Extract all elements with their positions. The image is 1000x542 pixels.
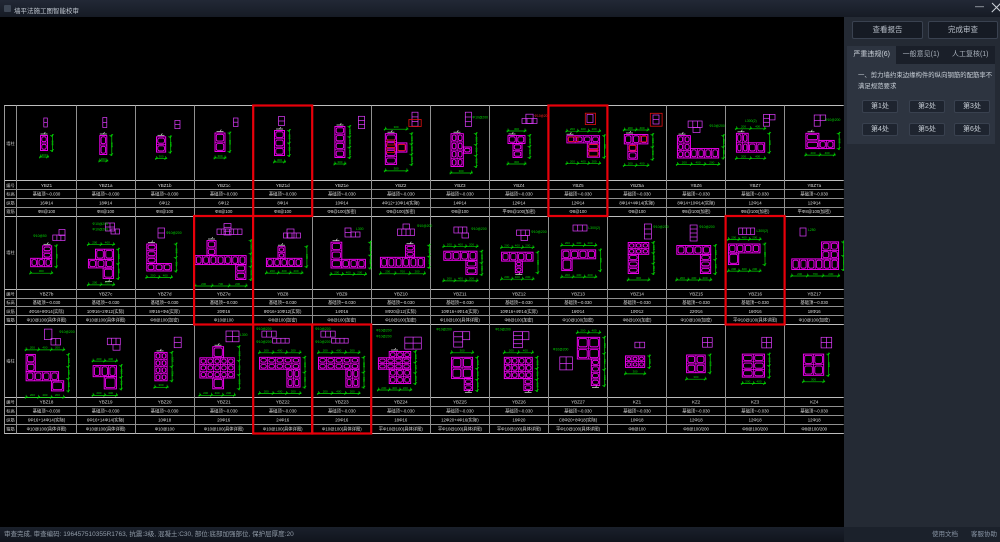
svg-text:400: 400	[475, 147, 479, 152]
svg-text:300: 300	[159, 154, 164, 158]
svg-text:Φ10@200: Φ10@200	[315, 327, 331, 331]
svg-text:16Φ16: 16Φ16	[749, 309, 763, 314]
svg-text:Φ8@100(加密): Φ8@100(加密)	[327, 317, 356, 324]
svg-text:300: 300	[536, 260, 540, 265]
svg-text:200: 200	[203, 391, 208, 395]
svg-text:基础顶~-0.030: 基础顶~-0.030	[741, 299, 769, 306]
svg-text:12Φ14: 12Φ14	[572, 201, 586, 206]
svg-text:墙柱: 墙柱	[6, 249, 15, 256]
svg-text:YBZ19: YBZ19	[99, 400, 113, 405]
svg-text:200: 200	[628, 126, 633, 130]
svg-text:200: 200	[476, 360, 480, 365]
svg-text:200: 200	[525, 275, 530, 279]
svg-text:200: 200	[67, 358, 71, 363]
svg-text:200: 200	[201, 282, 206, 286]
svg-text:300: 300	[55, 253, 59, 258]
svg-text:8Φ14: 8Φ14	[277, 201, 288, 206]
svg-text:YBZ8: YBZ8	[277, 292, 289, 297]
svg-text:YBZ23: YBZ23	[335, 400, 349, 405]
svg-text:平Φ10@100(具体详图): 平Φ10@100(具体详图)	[379, 426, 424, 433]
svg-text:基础顶~-0.030: 基础顶~-0.030	[446, 299, 474, 306]
svg-text:300: 300	[101, 157, 106, 161]
svg-text:200: 200	[428, 248, 432, 253]
svg-text:Φ10@200: Φ10@200	[59, 330, 75, 334]
svg-text:400: 400	[722, 150, 726, 155]
svg-text:200: 200	[810, 151, 815, 155]
svg-text:基础顶~-0.030: 基础顶~-0.030	[387, 408, 415, 415]
svg-text:200: 200	[334, 270, 339, 274]
svg-text:基础顶~-0.030: 基础顶~-0.030	[328, 299, 356, 306]
svg-text:基础顶~-0.030: 基础顶~-0.030	[446, 408, 474, 415]
svg-text:基础顶~-0.030: 基础顶~-0.030	[623, 408, 651, 415]
svg-text:YBZ10: YBZ10	[394, 292, 408, 297]
svg-text:300: 300	[768, 140, 772, 145]
svg-text:400: 400	[651, 150, 655, 155]
svg-text:400: 400	[369, 259, 373, 264]
svg-text:Φ8@100/200: Φ8@100/200	[801, 427, 827, 432]
svg-text:400: 400	[105, 241, 110, 245]
svg-text:24Φ16: 24Φ16	[276, 418, 290, 423]
svg-text:Φ10@200: Φ10@200	[92, 222, 108, 226]
svg-text:Φ10@100(具体详图): Φ10@100(具体详图)	[263, 426, 303, 433]
svg-text:4Φ12+10Φ14(实际): 4Φ12+10Φ14(实际)	[382, 200, 420, 207]
svg-text:200: 200	[293, 269, 298, 273]
svg-text:Φ10@100(具体详图): Φ10@100(具体详图)	[86, 317, 126, 324]
svg-text:12Φ20+4Φ16(实际): 12Φ20+4Φ16(实际)	[441, 417, 479, 424]
svg-text:Φ10@200: Φ10@200	[315, 340, 331, 344]
svg-text:200: 200	[264, 349, 269, 353]
svg-text:200: 200	[235, 282, 240, 286]
svg-text:300: 300	[110, 142, 114, 147]
svg-text:基础顶~-0.030: 基础顶~-0.030	[741, 408, 769, 415]
svg-text:Φ10@200: Φ10@200	[553, 348, 569, 352]
svg-text:200: 200	[651, 138, 655, 143]
svg-text:YBZ25: YBZ25	[453, 400, 467, 405]
svg-text:200: 200	[357, 270, 362, 274]
svg-text:400: 400	[592, 329, 597, 333]
svg-text:200: 200	[587, 241, 592, 245]
svg-text:200: 200	[55, 393, 60, 397]
svg-text:YBZ1e: YBZ1e	[335, 183, 349, 188]
svg-text:400: 400	[515, 275, 520, 279]
svg-text:Φ8@100(加密): Φ8@100(加密)	[682, 208, 711, 215]
svg-text:16Φ20: 16Φ20	[512, 418, 526, 423]
svg-text:400: 400	[755, 125, 760, 129]
svg-text:400: 400	[414, 365, 418, 370]
svg-text:400: 400	[714, 264, 718, 269]
svg-text:YBZ7d: YBZ7d	[158, 292, 172, 297]
svg-text:10Φ12: 10Φ12	[631, 309, 645, 314]
svg-text:400: 400	[528, 149, 532, 154]
svg-text:平Φ8@100(加密): 平Φ8@100(加密)	[502, 208, 536, 215]
svg-text:700: 700	[603, 359, 607, 364]
svg-text:Φ10@200: Φ10@200	[825, 118, 841, 122]
svg-text:基础顶~-0.030: 基础顶~-0.030	[800, 408, 828, 415]
svg-text:400: 400	[42, 346, 47, 350]
svg-text:Φ8@100: Φ8@100	[97, 209, 115, 214]
svg-text:纵筋: 纵筋	[6, 200, 14, 207]
svg-text:基础顶~-0.030: 基础顶~-0.030	[33, 191, 61, 198]
svg-text:12Φ18: 12Φ18	[749, 418, 763, 423]
svg-text:Φ10@100(具体详图): Φ10@100(具体详图)	[322, 426, 362, 433]
svg-text:400: 400	[756, 379, 761, 383]
svg-text:10Φ16+4Φ14(实际): 10Φ16+4Φ14(实际)	[441, 308, 479, 315]
svg-text:400: 400	[105, 281, 110, 285]
svg-text:200: 200	[303, 362, 307, 367]
svg-text:200: 200	[722, 138, 726, 143]
svg-text:YBZ20: YBZ20	[158, 400, 172, 405]
svg-text:200: 200	[565, 273, 570, 277]
svg-text:Φ10@200: Φ10@200	[256, 327, 272, 331]
svg-text:200: 200	[714, 250, 718, 255]
svg-text:Φ10@200: Φ10@200	[92, 228, 108, 232]
svg-text:基础顶~-0.030: 基础顶~-0.030	[387, 191, 415, 198]
svg-text:400: 400	[755, 155, 760, 159]
svg-text:YBZ12: YBZ12	[512, 292, 526, 297]
svg-text:Φ8@100: Φ8@100	[215, 209, 233, 214]
svg-text:300: 300	[514, 127, 519, 131]
svg-text:YBZ7a: YBZ7a	[807, 183, 821, 188]
svg-text:Φ10@100(具体详图): Φ10@100(具体详图)	[440, 317, 480, 324]
svg-text:基础顶~-0.030: 基础顶~-0.030	[682, 299, 710, 306]
svg-text:400: 400	[117, 268, 121, 273]
svg-text:400: 400	[695, 160, 700, 164]
svg-text:200: 200	[403, 386, 408, 390]
svg-text:400: 400	[410, 146, 414, 151]
svg-text:200: 200	[476, 382, 480, 387]
svg-text:YBZ1b: YBZ1b	[158, 183, 172, 188]
svg-text:平Φ10@100(具体详图): 平Φ10@100(具体详图)	[733, 317, 778, 324]
svg-text:200: 200	[447, 243, 452, 247]
svg-text:Φ10@200: Φ10@200	[436, 328, 452, 332]
svg-text:基础顶~-0.030: 基础顶~-0.030	[623, 191, 651, 198]
svg-text:400: 400	[742, 235, 747, 239]
svg-text:300: 300	[39, 269, 44, 273]
svg-text:平Φ8@100(加密): 平Φ8@100(加密)	[798, 208, 832, 215]
svg-text:300: 300	[633, 370, 638, 374]
svg-text:200: 200	[362, 362, 366, 367]
svg-text:Φ10@100: Φ10@100	[155, 427, 175, 432]
svg-text:Φ8@100: Φ8@100	[628, 427, 646, 432]
svg-text:200: 200	[525, 244, 530, 248]
svg-text:300: 300	[693, 375, 698, 379]
svg-text:基础顶~-0.030: 基础顶~-0.030	[446, 191, 474, 198]
svg-text:300: 300	[228, 139, 232, 144]
svg-text:300: 300	[217, 154, 222, 158]
svg-text:KZ3: KZ3	[751, 400, 760, 405]
svg-text:200: 200	[30, 393, 35, 397]
svg-text:400: 400	[362, 377, 366, 382]
svg-text:200: 200	[323, 349, 328, 353]
svg-text:400: 400	[163, 273, 168, 277]
svg-text:400: 400	[480, 266, 484, 271]
svg-text:YBZ9: YBZ9	[336, 292, 348, 297]
svg-text:编号: 编号	[6, 291, 14, 298]
svg-text:200: 200	[480, 254, 484, 259]
svg-text:400: 400	[458, 277, 463, 281]
svg-text:200: 200	[288, 134, 292, 139]
svg-text:200: 200	[170, 357, 174, 362]
svg-text:400: 400	[215, 391, 220, 395]
svg-text:200: 200	[96, 357, 101, 361]
svg-text:300: 300	[708, 361, 712, 366]
svg-text:Φ8@100: Φ8@100	[156, 209, 174, 214]
svg-text:YBZ13: YBZ13	[571, 292, 585, 297]
svg-text:YBZ6: YBZ6	[690, 183, 702, 188]
svg-text:200: 200	[570, 160, 575, 164]
svg-text:400: 400	[639, 162, 644, 166]
svg-text:400: 400	[742, 267, 747, 271]
svg-text:200: 200	[592, 160, 597, 164]
svg-text:12Φ14: 12Φ14	[749, 201, 763, 206]
svg-text:400: 400	[691, 276, 696, 280]
svg-text:200: 200	[475, 136, 479, 141]
svg-text:200: 200	[587, 273, 592, 277]
svg-text:Φ8@100/200: Φ8@100/200	[683, 427, 709, 432]
svg-text:Φ8@100(加密): Φ8@100(加密)	[504, 317, 533, 324]
svg-text:基础顶~-0.030: 基础顶~-0.030	[269, 191, 297, 198]
svg-text:22Φ16: 22Φ16	[690, 309, 704, 314]
svg-text:200: 200	[752, 267, 757, 271]
svg-text:200: 200	[652, 265, 656, 270]
svg-text:基础顶~-0.030: 基础顶~-0.030	[800, 299, 828, 306]
svg-text:200: 200	[381, 386, 386, 390]
svg-text:Φ8@100/200: Φ8@100/200	[742, 427, 768, 432]
svg-text:YBZ5a: YBZ5a	[630, 183, 644, 188]
svg-text:Φ8@100(加密): Φ8@100(加密)	[150, 317, 179, 324]
svg-text:YBZ7c: YBZ7c	[99, 292, 113, 297]
svg-text:200: 200	[731, 267, 736, 271]
svg-text:Φ10@200: Φ10@200	[417, 224, 433, 228]
svg-text:300: 300	[51, 140, 55, 145]
svg-text:Φ10@200: Φ10@200	[653, 225, 669, 229]
svg-text:YBZ15: YBZ15	[689, 292, 703, 297]
svg-text:12Φ18: 12Φ18	[690, 418, 704, 423]
svg-text:纵筋: 纵筋	[6, 308, 14, 315]
svg-text:基础顶~-0.030: 基础顶~-0.030	[800, 191, 828, 198]
svg-text:200: 200	[350, 349, 355, 353]
svg-text:300: 300	[636, 276, 641, 280]
svg-text:18Φ14: 18Φ14	[99, 201, 113, 206]
svg-text:标高: 标高	[6, 408, 14, 415]
svg-text:平Φ10@100(具体详图): 平Φ10@100(具体详图)	[497, 426, 542, 433]
svg-text:Φ8@100: Φ8@100	[274, 209, 292, 214]
svg-text:400: 400	[303, 377, 307, 382]
svg-text:基础顶~-0.030: 基础顶~-0.030	[92, 191, 120, 198]
svg-text:L300(2): L300(2)	[588, 226, 600, 230]
svg-text:18Φ16: 18Φ16	[394, 418, 408, 423]
svg-text:基础顶~-0.030: 基础顶~-0.030	[92, 408, 120, 415]
svg-text:Φ8@100: Φ8@100	[628, 209, 646, 214]
svg-text:400: 400	[639, 126, 644, 130]
svg-text:200: 200	[385, 270, 390, 274]
svg-text:基础顶~-0.030: 基础顶~-0.030	[505, 408, 533, 415]
svg-text:Φ10@200: Φ10@200	[471, 227, 487, 231]
svg-text:200: 200	[768, 357, 772, 362]
svg-text:300: 300	[337, 160, 342, 164]
svg-text:200: 200	[238, 351, 242, 356]
svg-text:YBZ26: YBZ26	[512, 400, 526, 405]
svg-text:基础顶~-0.030: 基础顶~-0.030	[564, 191, 592, 198]
svg-text:L300(2): L300(2)	[745, 119, 757, 123]
svg-text:400: 400	[768, 369, 772, 374]
svg-text:YBZ1d: YBZ1d	[276, 183, 290, 188]
svg-text:200: 200	[475, 158, 479, 163]
svg-text:400: 400	[581, 127, 586, 131]
svg-text:编号: 编号	[6, 182, 14, 189]
svg-text:YBZ16: YBZ16	[748, 292, 762, 297]
svg-text:Φ10@200: Φ10@200	[376, 335, 392, 339]
svg-text:Φ10@50: Φ10@50	[33, 234, 47, 238]
svg-text:纵筋: 纵筋	[6, 417, 14, 424]
svg-text:Φ10@200: Φ10@200	[256, 340, 272, 344]
svg-text:YBZ14: YBZ14	[630, 292, 644, 297]
svg-text:基础顶~-0.030: 基础顶~-0.030	[682, 191, 710, 198]
svg-text:YBZ17: YBZ17	[807, 292, 821, 297]
svg-text:L300: L300	[240, 333, 248, 337]
svg-text:12Φ18: 12Φ18	[808, 418, 822, 423]
svg-text:300: 300	[305, 254, 309, 259]
svg-text:400: 400	[238, 365, 242, 370]
svg-text:200: 200	[238, 379, 242, 384]
svg-text:400: 400	[288, 146, 292, 151]
svg-text:200: 200	[120, 369, 124, 374]
svg-text:Φ10@100(加密): Φ10@100(加密)	[562, 317, 594, 324]
svg-text:200: 200	[709, 160, 714, 164]
svg-text:200: 200	[414, 375, 418, 380]
svg-text:Φ10@200: Φ10@200	[535, 114, 550, 118]
svg-text:200: 200	[150, 273, 155, 277]
svg-text:Φ10@200: Φ10@200	[495, 328, 511, 332]
svg-text:基础顶~-0.030: 基础顶~-0.030	[328, 191, 356, 198]
svg-text:200: 200	[652, 245, 656, 250]
svg-text:基础顶~-0.030: 基础顶~-0.030	[92, 299, 120, 306]
svg-text:YBZ2: YBZ2	[395, 183, 407, 188]
svg-text:200: 200	[603, 343, 607, 348]
svg-text:Φ10@200: Φ10@200	[166, 231, 182, 235]
svg-text:10Φ18: 10Φ18	[158, 418, 172, 423]
svg-text:18Φ16: 18Φ16	[808, 309, 822, 314]
svg-text:基础顶~-0.030: 基础顶~-0.030	[33, 299, 61, 306]
svg-text:YBZ22: YBZ22	[276, 400, 290, 405]
svg-text:标高: 标高	[6, 299, 14, 306]
svg-text:Φ10@200: Φ10@200	[376, 329, 392, 333]
svg-text:200: 200	[410, 136, 414, 141]
svg-text:10Φ16+4Φ14(实际): 10Φ16+4Φ14(实际)	[500, 308, 538, 315]
svg-text:基础顶~-0.030: 基础顶~-0.030	[387, 299, 415, 306]
svg-text:YBZ18: YBZ18	[40, 400, 54, 405]
svg-text:400: 400	[458, 243, 463, 247]
svg-text:6Φ16+14Φ14(实际): 6Φ16+14Φ14(实际)	[87, 417, 125, 424]
svg-text:YBZ4: YBZ4	[513, 183, 525, 188]
svg-text:200: 200	[350, 389, 355, 393]
svg-text:基础顶~-0.030: 基础顶~-0.030	[210, 408, 238, 415]
svg-text:200: 200	[592, 127, 597, 131]
svg-text:YBZ3: YBZ3	[454, 183, 466, 188]
svg-text:16Φ14: 16Φ14	[40, 201, 54, 206]
svg-text:YBZ1a: YBZ1a	[99, 183, 113, 188]
svg-text:Φ10@200: Φ10@200	[709, 124, 725, 128]
svg-text:标高: 标高	[6, 191, 14, 198]
svg-text:200: 200	[415, 270, 420, 274]
svg-text:YBZ21: YBZ21	[217, 400, 231, 405]
svg-text:L300(2): L300(2)	[757, 229, 769, 233]
svg-text:200: 200	[67, 382, 71, 387]
svg-text:200: 200	[92, 241, 97, 245]
svg-text:200: 200	[528, 138, 532, 143]
svg-text:300: 300	[460, 349, 465, 353]
svg-text:8Φ16+Φ4(实际): 8Φ16+Φ4(实际)	[149, 308, 180, 315]
svg-text:8Φ16+10Φ12(实际): 8Φ16+10Φ12(实际)	[264, 308, 302, 315]
svg-text:Φ10@100(加密): Φ10@100(加密)	[799, 317, 831, 324]
svg-text:6Φ12: 6Φ12	[159, 201, 170, 206]
svg-text:Φ10@100(具体详图): Φ10@100(具体详图)	[204, 426, 244, 433]
svg-text:200: 200	[323, 389, 328, 393]
svg-text:Φ8@100(加密): Φ8@100(加密)	[386, 208, 415, 215]
svg-text:200: 200	[291, 389, 296, 393]
svg-text:200: 200	[369, 246, 373, 251]
svg-text:基础顶~-0.030: 基础顶~-0.030	[505, 299, 533, 306]
svg-text:Φ8@100(加密): Φ8@100(加密)	[623, 317, 652, 324]
svg-text:基础顶~-0.030: 基础顶~-0.030	[33, 408, 61, 415]
svg-text:20Φ16: 20Φ16	[217, 309, 231, 314]
svg-text:平Φ10@100(具体详图): 平Φ10@100(具体详图)	[438, 426, 483, 433]
svg-text:基础顶~-0.030: 基础顶~-0.030	[210, 299, 238, 306]
svg-text:400: 400	[277, 389, 282, 393]
svg-text:12Φ14: 12Φ14	[512, 201, 526, 206]
svg-text:12Φ14: 12Φ14	[808, 201, 822, 206]
svg-text:400: 400	[120, 380, 124, 385]
svg-text:Φ8@100: Φ8@100	[569, 209, 587, 214]
svg-text:200: 200	[702, 276, 707, 280]
svg-text:400: 400	[576, 241, 581, 245]
svg-text:300: 300	[514, 160, 519, 164]
svg-text:700: 700	[218, 282, 223, 286]
svg-text:300: 300	[763, 251, 767, 256]
svg-text:300: 300	[603, 144, 607, 149]
svg-text:6Φ16+14Φ14(实际): 6Φ16+14Φ14(实际)	[28, 417, 66, 424]
svg-text:Φ8@100(加密): Φ8@100(加密)	[268, 317, 297, 324]
svg-text:基础顶~-0.030: 基础顶~-0.030	[151, 408, 179, 415]
svg-text:200: 200	[414, 354, 418, 359]
svg-text:400: 400	[170, 371, 174, 376]
svg-text:200: 200	[509, 349, 514, 353]
svg-text:6Φ12: 6Φ12	[218, 201, 229, 206]
svg-text:基础顶~-0.030: 基础顶~-0.030	[269, 408, 297, 415]
svg-text:200: 200	[469, 277, 474, 281]
svg-text:Φ8@100: Φ8@100	[38, 209, 56, 214]
svg-text:300: 300	[394, 167, 399, 171]
svg-text:Φ8@100: Φ8@100	[451, 209, 469, 214]
svg-text:编号: 编号	[6, 399, 14, 406]
svg-text:300: 300	[599, 257, 603, 262]
svg-text:YBZ1c: YBZ1c	[217, 183, 231, 188]
svg-text:Φ10@200: Φ10@200	[472, 116, 488, 120]
svg-text:Φ10@100(加密): Φ10@100(加密)	[385, 317, 417, 324]
svg-text:200: 200	[570, 127, 575, 131]
svg-text:400: 400	[42, 393, 47, 397]
svg-text:200: 200	[565, 241, 570, 245]
svg-text:200: 200	[828, 272, 833, 276]
svg-text:基础顶~-0.030: 基础顶~-0.030	[269, 299, 297, 306]
svg-text:YBZ7b: YBZ7b	[40, 292, 54, 297]
svg-text:10Φ16+2Φ12(实际): 10Φ16+2Φ12(实际)	[87, 308, 125, 315]
svg-text:Φ10@100(具体详图): Φ10@100(具体详图)	[27, 317, 67, 324]
svg-text:10Φ14: 10Φ14	[335, 201, 349, 206]
svg-text:400: 400	[523, 349, 528, 353]
svg-text:基础顶~-0.030: 基础顶~-0.030	[623, 299, 651, 306]
svg-text:14Φ14: 14Φ14	[453, 201, 467, 206]
